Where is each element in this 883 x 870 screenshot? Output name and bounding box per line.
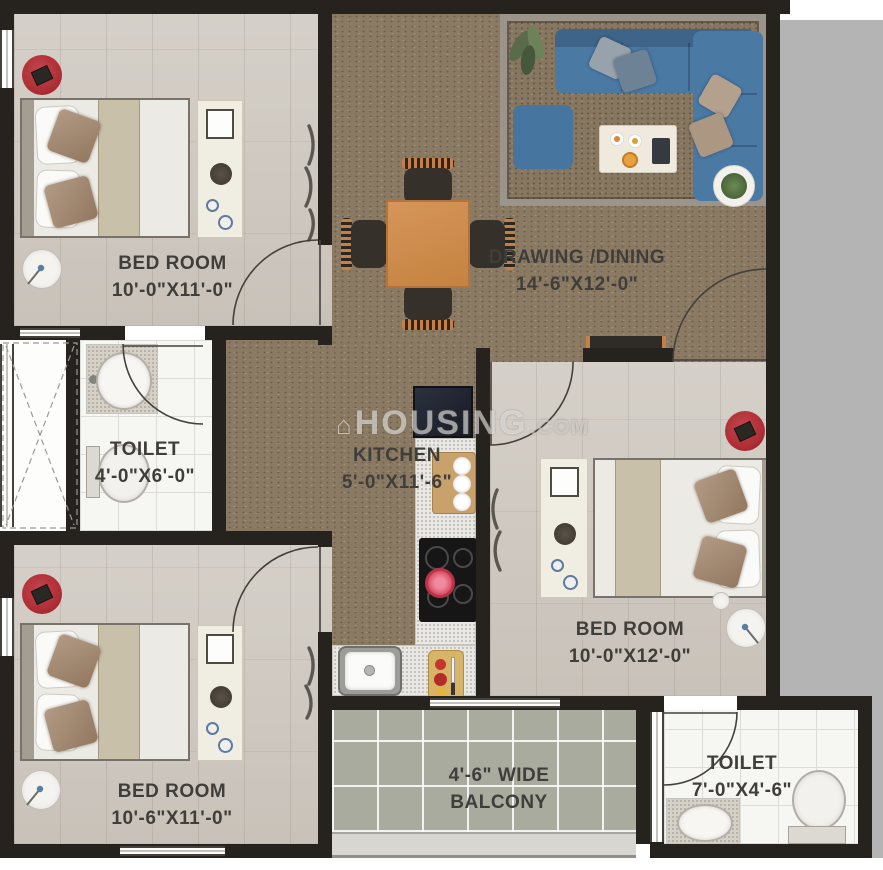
plate-food — [614, 136, 620, 142]
tomato — [434, 673, 447, 686]
vanity-counter — [86, 344, 158, 414]
dining-chair — [404, 168, 452, 204]
desk-plant — [210, 686, 232, 708]
room-dims: 10'-0"X12'-0" — [545, 643, 715, 670]
plant-icon — [509, 23, 557, 81]
window — [120, 846, 225, 856]
sofa-ottoman — [513, 105, 573, 169]
rug-book — [31, 64, 54, 85]
console-table — [586, 336, 666, 348]
tray — [652, 138, 670, 164]
toilet-tank — [788, 826, 846, 844]
rug-book — [31, 583, 54, 604]
round-rug — [725, 411, 765, 451]
balcony-ledge — [332, 832, 636, 858]
room-name: TOILET — [662, 750, 822, 777]
desk — [540, 458, 588, 598]
side-table — [726, 608, 766, 648]
plate-food — [632, 138, 638, 144]
room-label-kitchen: KITCHEN 5'-0"X11'-6" — [322, 442, 472, 496]
shaft-louver-window — [0, 344, 14, 527]
bed — [593, 458, 776, 598]
plant-icon — [721, 173, 747, 199]
room-name: BED ROOM — [545, 616, 715, 643]
living-area-rug — [500, 14, 766, 206]
desk-cup — [206, 722, 219, 735]
house-icon: ⌂ — [336, 410, 352, 441]
room-name: TOILET — [70, 436, 220, 463]
bed-headboard — [22, 625, 34, 759]
tomato — [435, 659, 446, 670]
watermark-tld: .COM — [530, 416, 589, 440]
desk-cup — [206, 199, 219, 212]
desk — [197, 100, 243, 238]
vanity-counter — [666, 798, 740, 844]
room-label-toilet-bottom-right: TOILET 7'-0"X4'-6" — [662, 750, 822, 804]
wall-segment — [583, 348, 673, 362]
room-dims: 7'-0"X4'-6" — [662, 777, 822, 804]
chair-back — [402, 319, 454, 330]
laptop-icon — [550, 467, 579, 497]
coffee-table — [599, 125, 677, 173]
window — [20, 328, 80, 338]
balcony-sliding-door — [430, 698, 560, 708]
wall-segment — [636, 710, 650, 844]
laptop-icon — [206, 634, 234, 664]
room-dims: 10'-6"X11'-0" — [82, 805, 262, 832]
cutting-board — [428, 650, 464, 700]
kitchen-sink — [338, 646, 402, 696]
wall-segment — [205, 326, 332, 340]
housing-watermark: ⌂ HOUSING .COM — [336, 404, 589, 443]
wall-segment — [476, 348, 490, 710]
room-label-balcony: 4'-6" WIDE BALCONY — [419, 762, 579, 816]
room-label-bedroom-bottom-left: BED ROOM 10'-6"X11'-0" — [82, 778, 262, 832]
bed — [20, 98, 190, 238]
room-dims: 5'-0"X11'-6" — [322, 469, 472, 496]
laptop-icon — [206, 109, 234, 139]
watermark-text: HOUSING — [355, 404, 528, 443]
desk — [197, 625, 243, 761]
wash-basin — [96, 352, 152, 410]
floor-plan: BED ROOM 10'-0"X11'-0" DRAWING /DINING 1… — [0, 0, 883, 870]
wall-segment — [650, 844, 872, 858]
wall-segment — [0, 531, 14, 858]
side-table — [21, 770, 61, 810]
room-dims: 14'-6"X12'-0" — [452, 271, 702, 298]
room-name: KITCHEN — [322, 442, 472, 469]
desk-plant — [210, 163, 232, 185]
bed-headboard — [22, 100, 34, 236]
room-dims: 4'-0"X6'-0" — [70, 463, 220, 490]
desk-cup — [551, 559, 564, 572]
wall-segment — [0, 531, 332, 545]
bed-blanket — [98, 100, 140, 236]
room-label-toilet-left: TOILET 4'-0"X6'-0" — [70, 436, 220, 490]
dining-chair — [404, 284, 452, 320]
room-label-drawing-dining: DRAWING /DINING 14'-6"X12'-0" — [452, 244, 702, 298]
desk-plant — [554, 523, 576, 545]
wall-segment — [318, 531, 332, 547]
room-dims: 10'-0"X11'-0" — [55, 277, 290, 304]
bed-blanket — [98, 625, 140, 759]
room-label-bedroom-right: BED ROOM 10'-0"X12'-0" — [545, 616, 715, 670]
round-rug — [22, 574, 62, 614]
desk-cup — [218, 738, 233, 753]
desk-cup — [218, 215, 233, 230]
dining-chair — [351, 220, 387, 268]
wall-segment — [318, 632, 332, 858]
burner — [453, 584, 473, 604]
room-label-bedroom-top-left: BED ROOM 10'-0"X11'-0" — [55, 250, 290, 304]
room-name: DRAWING /DINING — [452, 244, 702, 271]
bed — [20, 623, 190, 761]
sofa-cushion-divider — [688, 43, 690, 91]
desk-cup — [563, 575, 578, 590]
wall-segment — [0, 0, 790, 14]
window — [0, 30, 14, 88]
burner — [453, 548, 473, 568]
round-rug — [22, 55, 62, 95]
burner — [425, 546, 449, 570]
room-name: BED ROOM — [55, 250, 290, 277]
window — [0, 598, 14, 656]
plant-pot — [713, 165, 755, 207]
wall-segment — [737, 696, 858, 710]
frying-pan — [425, 568, 455, 598]
wall-segment — [858, 696, 872, 858]
cooktop — [419, 538, 477, 622]
side-table-mini — [712, 592, 730, 610]
room-name: BED ROOM — [82, 778, 262, 805]
knife-handle — [451, 683, 455, 695]
wall-segment — [766, 0, 780, 710]
lemon — [436, 688, 447, 696]
knife-icon — [451, 657, 455, 683]
room-dims: BALCONY — [419, 789, 579, 816]
rug-book — [734, 420, 757, 441]
wall-segment — [318, 14, 332, 245]
room-name: 4'-6" WIDE — [419, 762, 579, 789]
flowers — [622, 152, 638, 168]
wash-basin — [677, 804, 733, 842]
bed-blanket — [615, 460, 661, 596]
sink-drain — [364, 665, 375, 676]
